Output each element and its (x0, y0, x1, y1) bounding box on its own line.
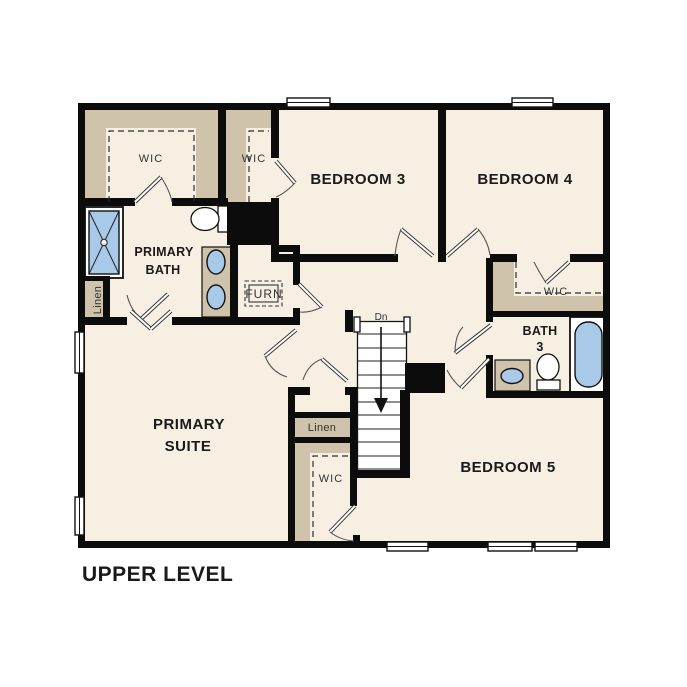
furnace-label: FURN (245, 287, 282, 301)
primary-suite-label-line2: SUITE (165, 438, 212, 455)
floor-plan-page: WIC WIC BEDROOM 3 BEDROOM 4 PRIMARY BATH… (0, 0, 687, 687)
floor-plan-drawing: WIC WIC BEDROOM 3 BEDROOM 4 PRIMARY BATH… (0, 0, 687, 687)
chase (405, 363, 445, 393)
bathtub (570, 317, 607, 394)
window (387, 542, 428, 551)
linen-left-label: Linen (92, 286, 104, 314)
bath3-label-line1: BATH (523, 324, 558, 338)
wic-bed4-label: WIC (544, 286, 568, 298)
plan-title: UPPER LEVEL (82, 563, 233, 586)
stair-newel-post (354, 317, 360, 332)
window (287, 98, 330, 107)
bedroom3-label: BEDROOM 3 (310, 171, 405, 188)
double-vanity (202, 247, 231, 317)
chase (227, 202, 273, 245)
wic-bed5-label: WIC (319, 473, 343, 485)
window (488, 542, 532, 551)
primary-bath-label-line2: BATH (146, 263, 181, 277)
wic-bed3-label: WIC (242, 153, 266, 165)
window (75, 332, 84, 373)
shower (85, 207, 123, 278)
window (512, 98, 553, 107)
primary-suite-label-line1: PRIMARY (153, 416, 225, 433)
window (75, 497, 84, 535)
bath3-vanity (495, 360, 530, 391)
linen-hall-label: Linen (308, 422, 336, 434)
stairs-down-label: Dn (375, 312, 388, 323)
bath3-label-line2: 3 (536, 340, 543, 354)
bath3-toilet (537, 354, 560, 390)
window (535, 542, 577, 551)
toilet (191, 206, 229, 232)
primary-bath-label-line1: PRIMARY (134, 245, 194, 259)
bedroom5-label: BEDROOM 5 (460, 459, 555, 476)
wic-primary-label: WIC (139, 153, 163, 165)
stair-newel-post (404, 317, 410, 332)
bedroom4-label: BEDROOM 4 (477, 171, 573, 188)
